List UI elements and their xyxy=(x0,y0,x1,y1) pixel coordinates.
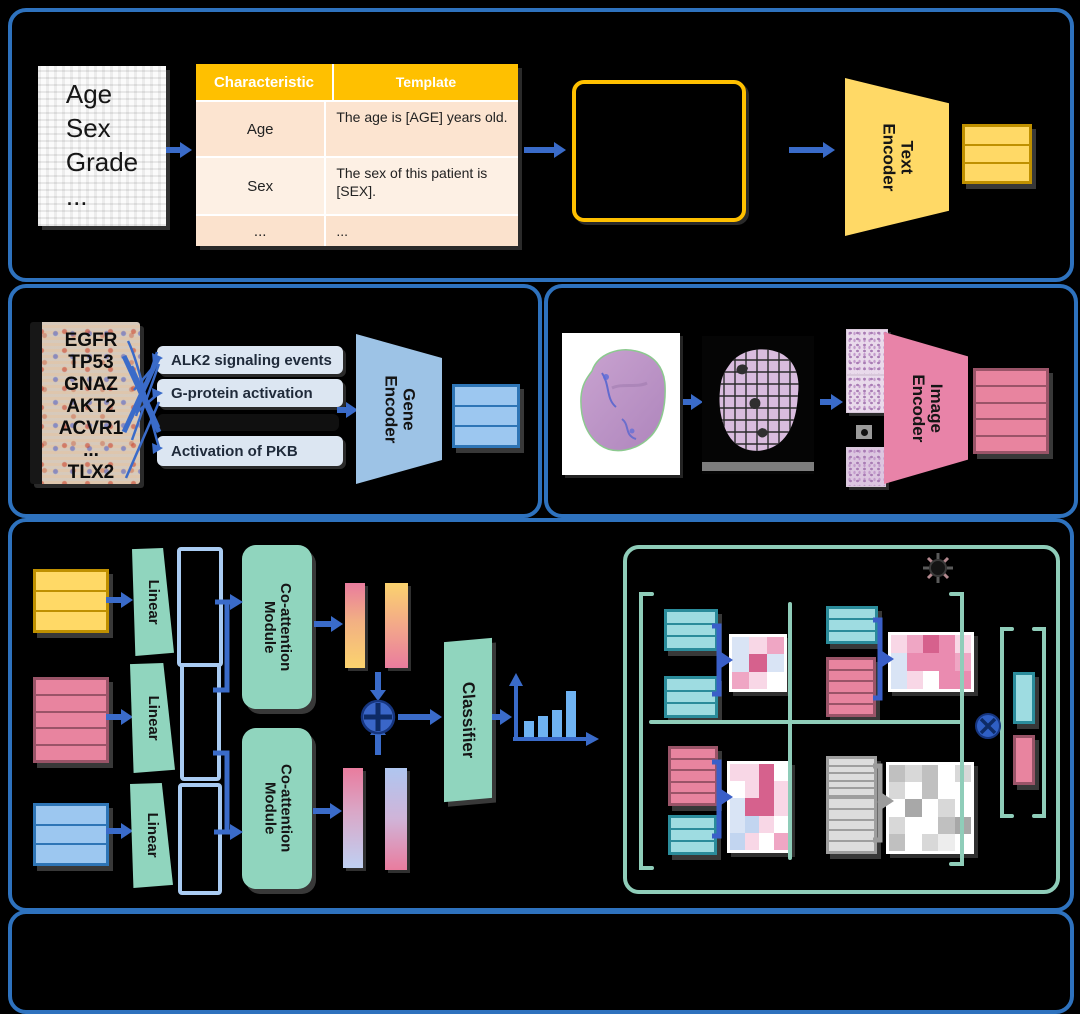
detail-output-block-teal xyxy=(1013,672,1035,724)
table-header-row: CharacteristicTemplate xyxy=(196,64,518,100)
table-cell: Sex xyxy=(196,158,326,214)
prediction-bar xyxy=(552,710,562,738)
embedding-row xyxy=(36,572,106,590)
detail-query-block xyxy=(826,606,878,644)
attention-cell xyxy=(730,781,745,798)
attention-cell xyxy=(938,765,954,782)
embedding-row xyxy=(976,371,1046,385)
attention-cell xyxy=(767,654,784,671)
document-line: Sex xyxy=(66,112,138,146)
gene-embedding-block xyxy=(452,384,520,448)
attention-cell xyxy=(891,671,907,689)
attention-cell xyxy=(939,635,955,653)
patched-slide-image xyxy=(702,336,814,474)
document-line: Grade xyxy=(66,146,138,180)
attention-cell xyxy=(905,782,921,799)
attention-cell xyxy=(767,637,784,654)
linear-label: Linear xyxy=(145,552,161,652)
coattention-module-2: Co-attention Module xyxy=(242,728,312,889)
embedding-row xyxy=(36,694,106,710)
detail-query-block xyxy=(668,746,718,806)
attention-cell xyxy=(922,765,938,782)
attention-cell xyxy=(759,781,774,798)
attention-cell xyxy=(905,799,921,816)
attention-cell xyxy=(759,833,774,850)
table-cell: The sex of this patient is [SEX]. xyxy=(326,158,518,214)
text-embedding-block xyxy=(962,124,1032,184)
prediction-bar xyxy=(524,721,534,738)
embedding-row xyxy=(829,618,875,629)
attention-cell xyxy=(749,637,766,654)
attention-cell xyxy=(759,816,774,833)
flow-arrow xyxy=(375,672,381,690)
attention-cell xyxy=(905,817,921,834)
attention-cell xyxy=(938,782,954,799)
attention-cell xyxy=(955,799,971,816)
attention-map-2 xyxy=(888,632,974,692)
text-encoder: Text Encoder xyxy=(845,78,949,236)
embedding-row xyxy=(36,727,106,743)
gene-label: ... xyxy=(83,440,99,462)
attention-cell xyxy=(938,799,954,816)
gene-label: AKT2 xyxy=(66,396,116,418)
gene-label: TLX2 xyxy=(68,462,114,484)
embedding-row xyxy=(829,780,874,788)
tissue-patch xyxy=(846,329,888,375)
flow-arrow xyxy=(313,808,330,814)
flow-arrow xyxy=(106,714,121,720)
flow-arrow xyxy=(789,147,823,153)
attention-cell xyxy=(730,833,745,850)
gene-expression-image: EGFRTP53GNAZAKT2ACVR1...TLX2 xyxy=(30,322,140,484)
embedding-row xyxy=(965,144,1029,163)
attention-cell xyxy=(955,834,971,851)
image-embedding-block xyxy=(973,368,1049,454)
attention-cell xyxy=(889,782,905,799)
detail-output-block-pink xyxy=(1013,735,1035,785)
classifier: Classifier xyxy=(444,638,492,802)
embedding-row xyxy=(1016,675,1032,721)
gene-labels: EGFRTP53GNAZAKT2ACVR1...TLX2 xyxy=(42,330,140,484)
embedding-row xyxy=(829,819,874,830)
template-table: CharacteristicTemplateAgeThe age is [AGE… xyxy=(196,64,518,246)
embedding-row xyxy=(671,769,715,780)
attended-feature-bar xyxy=(385,583,408,668)
flow-arrow xyxy=(820,399,831,405)
image-encoder-label: Image Encoder xyxy=(908,336,945,481)
embedding-row xyxy=(671,840,714,852)
embedding-row xyxy=(667,679,715,690)
flow-arrow xyxy=(314,621,331,627)
attention-cell xyxy=(955,765,971,782)
attention-cell xyxy=(938,834,954,851)
attention-cell xyxy=(905,834,921,851)
tissue-patch xyxy=(846,375,888,413)
flow-arrow xyxy=(166,147,180,153)
attention-cell xyxy=(891,635,907,653)
linear-label: Linear xyxy=(144,668,160,768)
attention-cell xyxy=(730,816,745,833)
table-cell: ... xyxy=(326,216,518,246)
attended-feature-bar xyxy=(343,768,363,868)
table-cell: ... xyxy=(196,216,326,246)
pathway-pill: G-protein activation xyxy=(157,379,343,407)
attention-cell xyxy=(730,798,745,815)
projected-feature-box-text xyxy=(177,547,223,667)
attention-cell xyxy=(922,799,938,816)
flow-arrow xyxy=(337,407,346,413)
detail-masked-block xyxy=(826,796,877,854)
attention-cell xyxy=(745,816,760,833)
attention-cell xyxy=(955,782,971,799)
embedding-row xyxy=(829,630,875,641)
embedding-row xyxy=(36,711,106,727)
linear-label: Linear xyxy=(143,786,159,886)
attention-cell xyxy=(938,817,954,834)
attention-cell xyxy=(749,654,766,671)
gene-label: ACVR1 xyxy=(59,418,123,440)
attention-cell xyxy=(759,764,774,781)
attention-cell xyxy=(745,764,760,781)
embedding-row xyxy=(455,405,517,425)
gene-encoder: Gene Encoder xyxy=(356,334,442,484)
attention-cell xyxy=(891,653,907,671)
table-row: ...... xyxy=(196,214,518,246)
embedding-row xyxy=(667,623,715,636)
embedding-row xyxy=(965,162,1029,181)
embedding-row xyxy=(829,772,874,780)
coattention-label: Co-attention Module xyxy=(261,548,293,706)
flow-arrow xyxy=(398,714,430,720)
embedding-row xyxy=(829,808,874,819)
table-cell: The age is [AGE] years old. xyxy=(326,102,518,156)
architecture-figure: AgeSexGrade... CharacteristicTemplateAge… xyxy=(0,0,1080,1014)
attention-cell xyxy=(907,671,923,689)
table-header-cell: Template xyxy=(334,64,518,100)
attention-map-3 xyxy=(727,761,791,853)
attention-cell xyxy=(922,817,938,834)
embedding-row xyxy=(829,692,873,703)
embedding-row xyxy=(671,792,715,803)
attention-cell xyxy=(774,798,789,815)
attention-cell xyxy=(907,653,923,671)
embedding-row xyxy=(976,385,1046,401)
detail-key-block xyxy=(668,815,717,855)
attention-cell xyxy=(923,635,939,653)
attention-cell xyxy=(732,672,749,689)
document-line: ... xyxy=(66,180,138,214)
embedding-row xyxy=(667,690,715,703)
attention-cell xyxy=(939,653,955,671)
gene-label: GNAZ xyxy=(64,374,118,396)
embedding-row xyxy=(667,635,715,648)
embedding-row xyxy=(36,806,106,824)
attention-cell xyxy=(889,799,905,816)
embedding-row xyxy=(671,781,715,792)
embedding-row xyxy=(829,840,874,851)
attention-cell xyxy=(732,637,749,654)
attention-cell xyxy=(732,654,749,671)
clinical-record-image: AgeSexGrade... xyxy=(38,66,166,226)
embedding-row xyxy=(36,680,106,694)
attention-cell xyxy=(923,671,939,689)
embedding-row xyxy=(455,387,517,405)
attention-cell xyxy=(889,834,905,851)
embedding-row xyxy=(829,799,874,808)
caption-panel xyxy=(8,910,1074,1014)
embedding-row xyxy=(671,758,715,769)
prediction-bar xyxy=(566,691,576,738)
gene-label: EGFR xyxy=(65,330,118,352)
embedding-row xyxy=(829,787,874,795)
attention-cell xyxy=(745,798,760,815)
embedding-row xyxy=(829,829,874,840)
embedding-row xyxy=(36,824,106,844)
embedding-row xyxy=(829,703,873,714)
pathway-pill: Activation of PKB xyxy=(157,436,343,466)
detail-query-block xyxy=(664,609,718,651)
attention-cell xyxy=(889,765,905,782)
text-encoder-label: Text Encoder xyxy=(879,82,916,232)
attention-cell xyxy=(774,816,789,833)
attention-cell xyxy=(922,834,938,851)
embedding-row xyxy=(829,609,875,618)
detail-masked-block xyxy=(826,756,877,798)
gene-embedding-input xyxy=(33,803,109,866)
embedding-row xyxy=(671,749,715,758)
embedding-row xyxy=(976,435,1046,451)
image-encoder: Image Encoder xyxy=(884,332,968,484)
projected-feature-box-image xyxy=(180,663,221,781)
attention-cell xyxy=(774,764,789,781)
table-cell: Age xyxy=(196,102,326,156)
coattention-module-1: Co-attention Module xyxy=(242,545,312,709)
attention-cell xyxy=(730,764,745,781)
document-lines: AgeSexGrade... xyxy=(66,78,138,213)
attention-cell xyxy=(955,635,971,653)
attention-cell xyxy=(955,653,971,671)
coattention-label: Co-attention Module xyxy=(261,731,293,886)
classifier-label: Classifier xyxy=(459,644,477,796)
attention-cell xyxy=(922,782,938,799)
prompt-text-box xyxy=(572,80,746,222)
flow-arrow xyxy=(683,399,691,405)
attention-cell xyxy=(745,781,760,798)
patch-ellipsis xyxy=(856,425,872,439)
pathway-pill: ALK2 signaling events xyxy=(157,346,343,374)
attention-cell xyxy=(923,653,939,671)
attention-cell xyxy=(907,635,923,653)
embedding-row xyxy=(36,610,106,630)
embedding-row xyxy=(965,127,1029,144)
attention-cell xyxy=(749,672,766,689)
embedding-row xyxy=(976,402,1046,418)
detail-key-block xyxy=(664,676,718,718)
prediction-bar xyxy=(538,716,548,738)
pathway-pill-hidden xyxy=(157,414,339,431)
attention-cell xyxy=(939,671,955,689)
attention-cell xyxy=(745,833,760,850)
flow-arrow xyxy=(375,735,381,755)
text-embedding-input xyxy=(33,569,109,633)
flow-arrow xyxy=(492,714,500,720)
flow-arrow xyxy=(524,147,554,153)
attention-cell xyxy=(774,781,789,798)
table-row: AgeThe age is [AGE] years old. xyxy=(196,100,518,156)
attention-cell xyxy=(955,671,971,689)
attention-map-1 xyxy=(729,634,787,692)
embedding-row xyxy=(1016,738,1032,782)
document-line: Age xyxy=(66,78,138,112)
pathway-pills: ALK2 signaling events G-protein activati… xyxy=(157,346,343,466)
attended-feature-bar xyxy=(345,583,365,668)
embedding-row xyxy=(829,660,873,669)
table-header-cell: Characteristic xyxy=(196,64,334,100)
gene-label: TP53 xyxy=(68,352,113,374)
embedding-row xyxy=(671,828,714,840)
attention-cell xyxy=(955,817,971,834)
flow-arrow xyxy=(106,828,121,834)
detail-key-block xyxy=(826,657,876,717)
attention-cell xyxy=(759,798,774,815)
embedding-row xyxy=(829,765,874,773)
gene-encoder-label: Gene Encoder xyxy=(381,339,418,479)
prediction-bar-chart xyxy=(524,689,586,738)
embedding-row xyxy=(976,418,1046,434)
embedding-row xyxy=(829,680,873,691)
attention-cell xyxy=(905,765,921,782)
embedding-row xyxy=(829,669,873,680)
attended-feature-bar xyxy=(385,768,407,870)
image-embedding-input xyxy=(33,677,109,763)
embedding-row xyxy=(667,612,715,623)
embedding-row xyxy=(667,702,715,715)
table-row: SexThe sex of this patient is [SEX]. xyxy=(196,156,518,214)
projected-feature-box-gene xyxy=(178,783,222,895)
flow-arrow xyxy=(106,597,121,603)
embedding-row xyxy=(671,818,714,828)
attention-map-masked xyxy=(886,762,974,854)
attention-cell xyxy=(889,817,905,834)
tissue-patch xyxy=(846,447,886,487)
embedding-row xyxy=(36,590,106,610)
embedding-row xyxy=(36,843,106,863)
attention-cell xyxy=(774,833,789,850)
attention-cell xyxy=(767,672,784,689)
embedding-row xyxy=(36,744,106,760)
whole-slide-image xyxy=(562,333,680,475)
embedding-row xyxy=(455,425,517,445)
